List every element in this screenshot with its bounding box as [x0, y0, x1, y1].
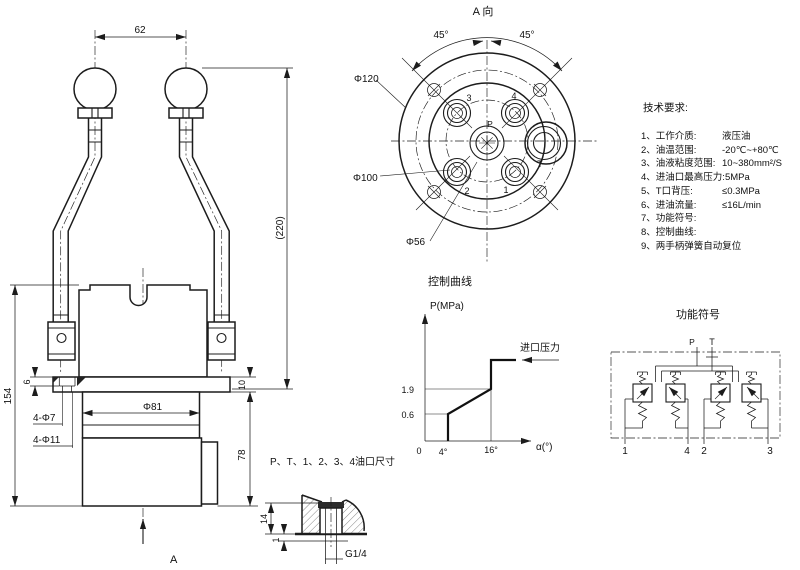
valve-2	[666, 384, 685, 402]
port-2-label: 2	[464, 186, 469, 196]
oil-port-detail: P、T、1、2、3、4油口尺寸 G1/4 14 1	[259, 455, 395, 564]
front-view: 62 (220) 154 6 10 78 Φ81 4-Φ7 4-Φ11 A	[3, 25, 293, 566]
tick-1-9: 1.9	[401, 385, 414, 395]
port-4	[502, 100, 529, 127]
view-arrow-label: A	[170, 554, 178, 566]
port-t-label: T	[537, 159, 543, 169]
body-cylinder	[83, 392, 200, 438]
tick-4: 4°	[439, 447, 448, 457]
function-symbol-schematic: 功能符号 P T	[611, 307, 780, 457]
tech-req-item: 9、两手柄弹簧自动复位	[641, 240, 799, 254]
dim-6: 6	[22, 379, 32, 384]
schematic-port-1: 1	[622, 446, 628, 457]
port-4-label: 4	[511, 91, 516, 101]
tech-req-item: 6、进油流量:≤16L/min	[641, 199, 799, 213]
schematic-p-label: P	[689, 337, 695, 347]
tech-req-item: 7、功能符号:	[641, 212, 799, 226]
thread-spec: G1/4	[345, 549, 367, 560]
dim-4d7: 4-Φ7	[33, 413, 56, 424]
angle-45-right: 45°	[519, 30, 534, 41]
port-3-label: 3	[466, 93, 471, 103]
drawing-linework: 62 (220) 154 6 10 78 Φ81 4-Φ7 4-Φ11 A A	[0, 0, 800, 570]
valve-springs	[639, 402, 756, 428]
dim-14: 14	[259, 514, 269, 524]
valve-1	[633, 384, 652, 402]
dim-220: (220)	[275, 216, 286, 239]
valve-body	[79, 285, 207, 377]
dim-1: 1	[271, 537, 281, 542]
tech-req-title: 技术要求:	[643, 100, 799, 115]
valve-4	[742, 384, 761, 402]
port-1-label: 1	[503, 185, 508, 195]
tick-0: 0	[416, 446, 421, 456]
x-axis-label: α(°)	[536, 442, 552, 453]
lower-block	[83, 438, 202, 506]
tech-req-item: 2、油温范围:-20℃~+80℃	[641, 144, 799, 158]
tech-req-item: 3、油液粘度范围:10~380mm²/S	[641, 157, 799, 171]
angle-45-left: 45°	[433, 30, 448, 41]
dim-10: 10	[237, 380, 247, 390]
tick-16: 16°	[484, 445, 498, 455]
tick-0-6: 0.6	[401, 410, 414, 420]
port-p-label: P	[487, 119, 493, 129]
port-2	[444, 159, 471, 186]
dim-d120: Φ120	[354, 74, 379, 85]
schematic-port-4: 4	[684, 446, 690, 457]
right-knob	[165, 68, 207, 110]
schematic-port-3: 3	[767, 446, 773, 457]
y-axis-label: P(MPa)	[430, 301, 464, 312]
dim-62: 62	[134, 25, 146, 36]
tech-req-item: 5、T口背压:≤0.3MPa	[641, 185, 799, 199]
inlet-pressure-label: 进口压力	[520, 341, 560, 354]
tech-req-item: 4、进油口最高压力:5MPa	[641, 171, 799, 185]
port-1	[502, 159, 529, 186]
top-view-title: A 向	[473, 4, 494, 18]
schematic-title: 功能符号	[676, 307, 720, 321]
dim-154: 154	[3, 387, 14, 404]
tech-req-item: 8、控制曲线:	[641, 226, 799, 240]
valve-3	[711, 384, 730, 402]
port-detail-title: P、T、1、2、3、4油口尺寸	[270, 455, 395, 468]
control-curve-chart: 控制曲线 P(MPa) α(°) 进口压力 1.9 0.6 0 4° 16°	[401, 274, 560, 457]
dim-4d11: 4-Φ11	[33, 435, 61, 446]
tech-req-item: 1、工作介质:液压油	[641, 130, 799, 144]
dim-d100: Φ100	[353, 173, 378, 184]
schematic-port-2: 2	[701, 446, 707, 457]
technical-requirements: 技术要求: 1、工作介质:液压油 2、油温范围:-20℃~+80℃ 3、油液粘度…	[641, 100, 799, 253]
pressure-curve	[448, 360, 516, 441]
side-tab	[202, 442, 218, 504]
schematic-t-label: T	[709, 337, 715, 347]
curve-title: 控制曲线	[428, 274, 472, 288]
engineering-drawing-sheet: 62 (220) 154 6 10 78 Φ81 4-Φ7 4-Φ11 A A	[0, 0, 800, 570]
dim-d81: Φ81	[143, 402, 163, 413]
left-knob	[74, 68, 116, 110]
dim-78: 78	[237, 449, 248, 461]
top-view: A 向 45° 45°	[353, 4, 599, 262]
dim-d56: Φ56	[406, 237, 426, 248]
